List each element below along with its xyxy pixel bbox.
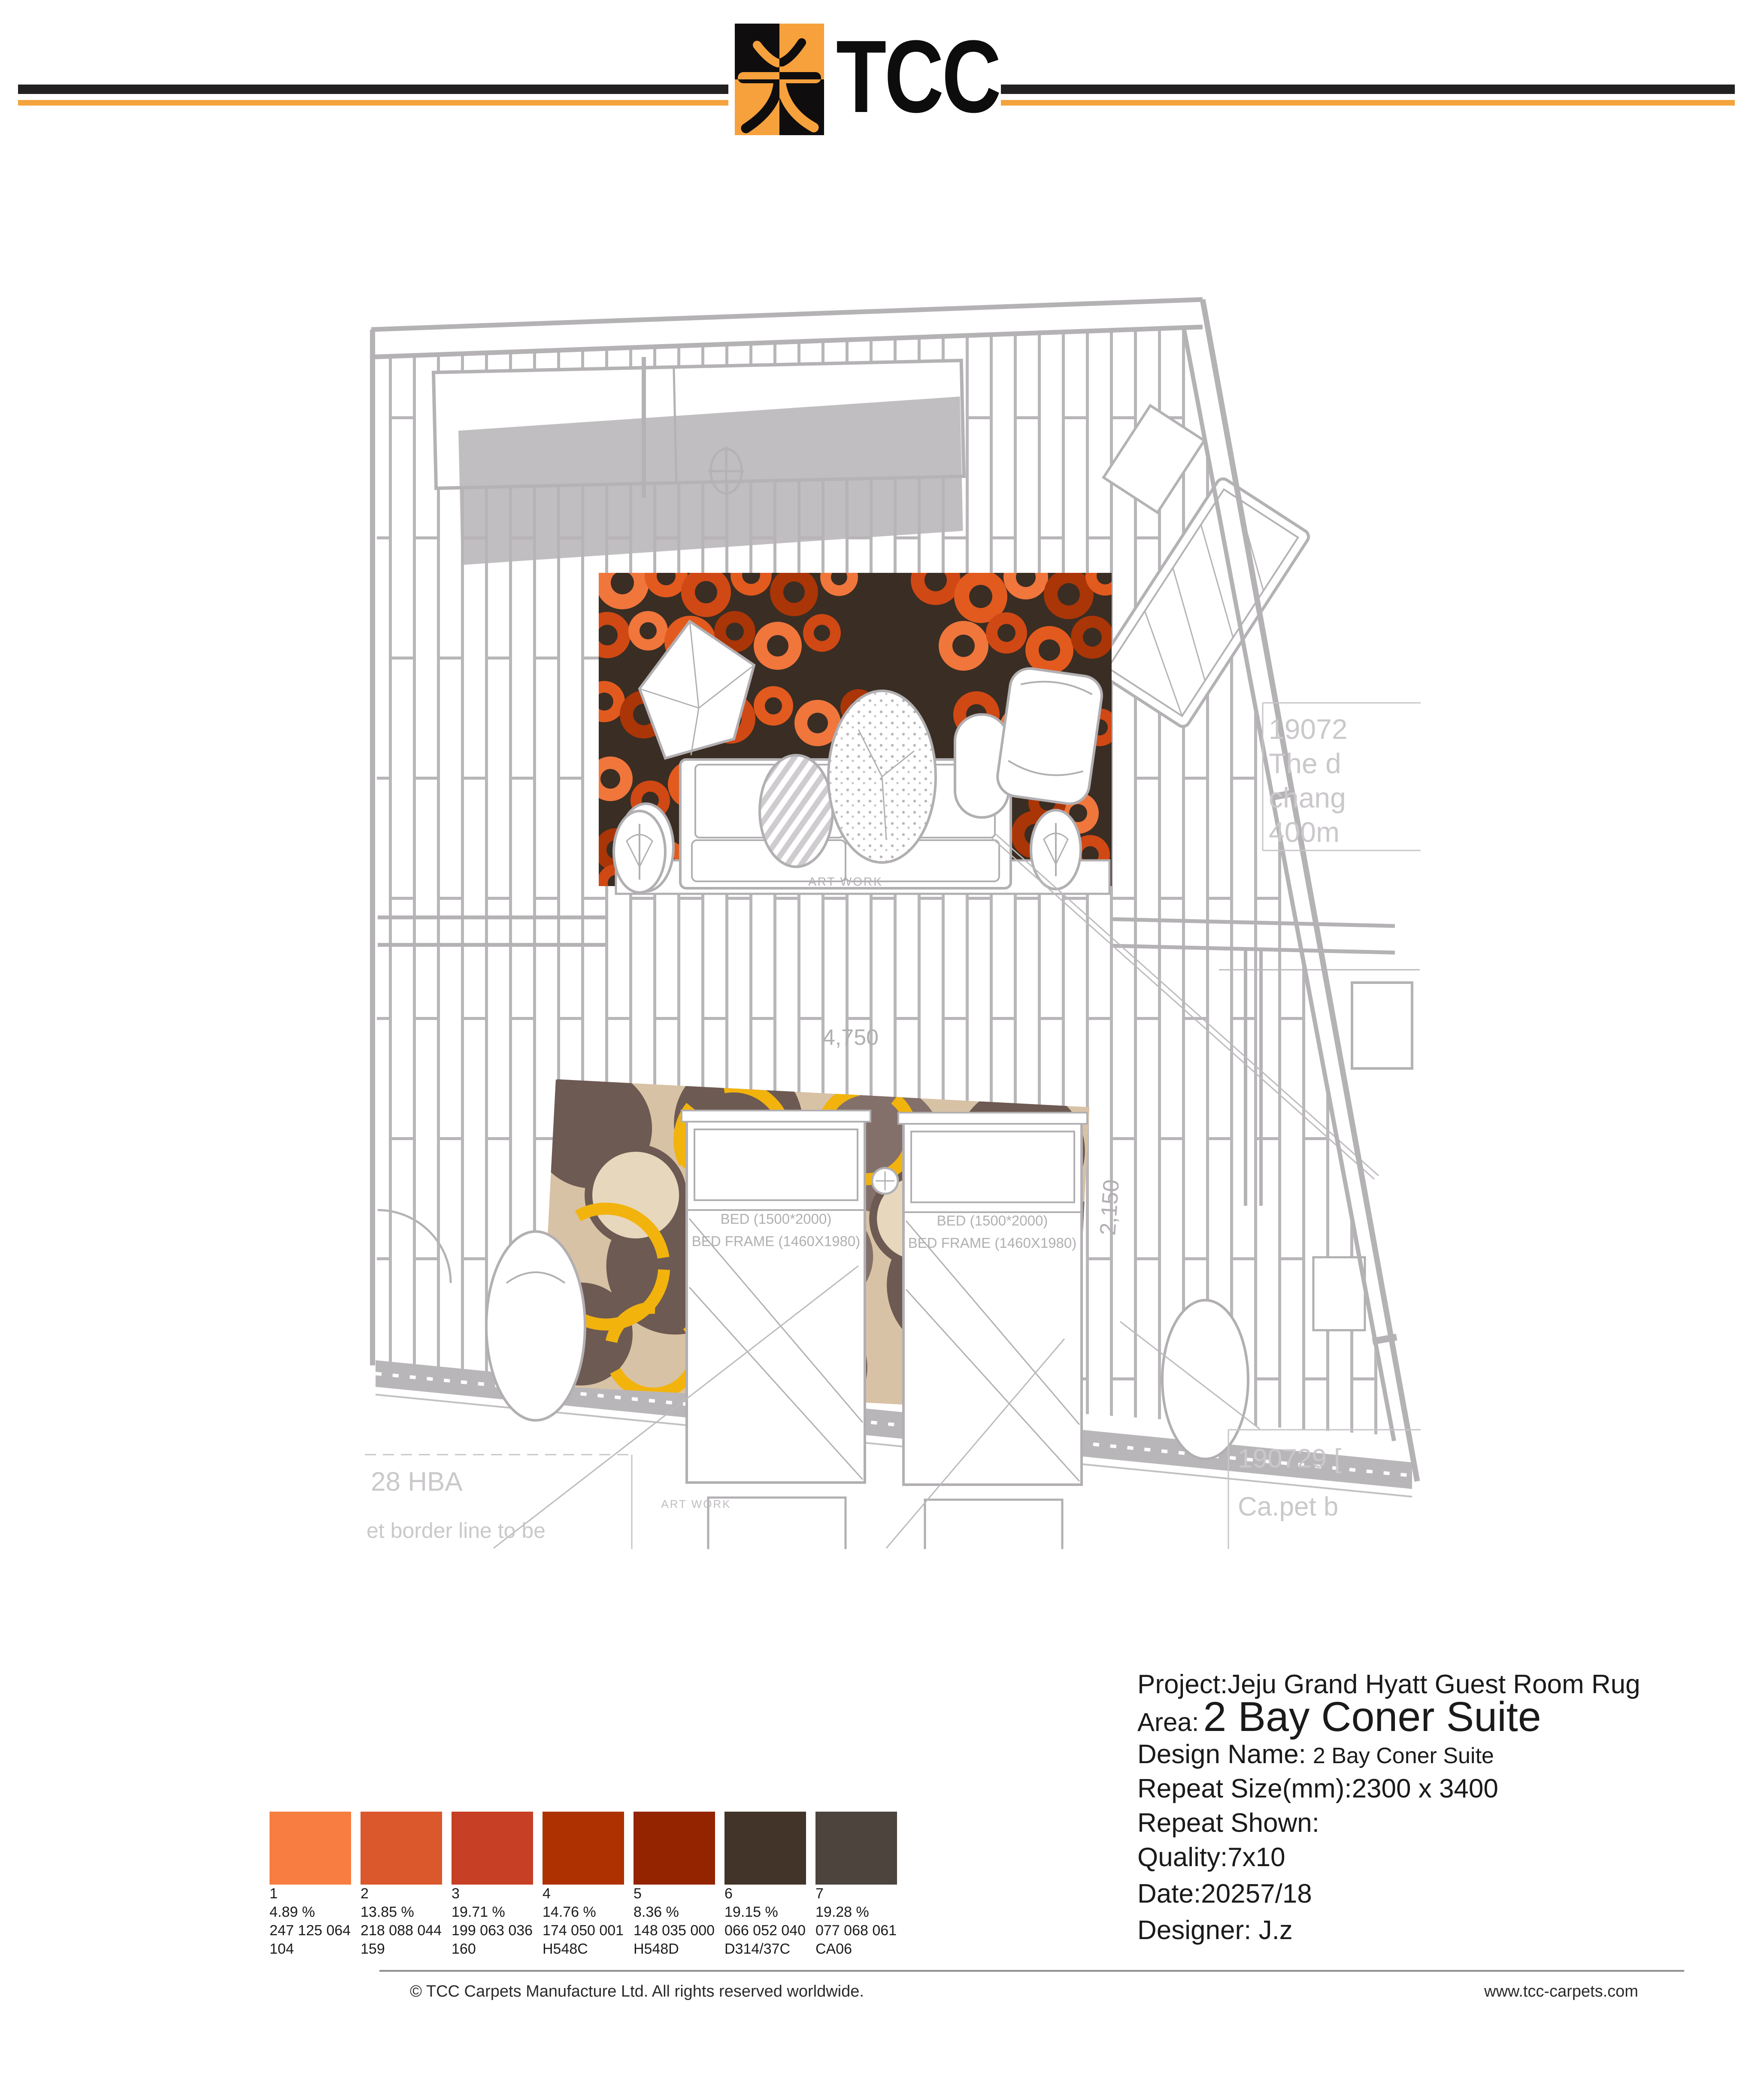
- designer-line: Designer: J.z: [1137, 1917, 1293, 1944]
- nightstand-icon: [872, 1168, 898, 1194]
- header-rule-left-black: [18, 85, 728, 94]
- note-bottom-right-line2: Ca.pet b: [1238, 1492, 1338, 1522]
- swatch-number: 3: [452, 1885, 533, 1903]
- swatch-percent: 19.15 %: [724, 1903, 806, 1921]
- swatch-code: D314/37C: [724, 1940, 806, 1958]
- brand-title: TCC: [836, 25, 999, 128]
- palette-cell: 7 19.28 % 077 068 061 CA06: [815, 1812, 897, 1958]
- tv-console: [433, 357, 966, 566]
- color-swatch-7: [815, 1812, 897, 1885]
- swatch-number: 4: [543, 1885, 624, 1903]
- artwork-label-bedroom: ART WORK: [661, 1498, 731, 1510]
- swatch-percent: 14.76 %: [543, 1903, 624, 1921]
- desk: [1313, 1257, 1365, 1330]
- swatch-code: 104: [270, 1940, 351, 1958]
- date-line: Date:20257/18: [1137, 1881, 1312, 1907]
- ottoman-hatched: [760, 755, 833, 867]
- note-bottom-left-line1: 28 HBA: [371, 1467, 463, 1497]
- bed2-label-line2: BED FRAME (1460X1980): [908, 1235, 1077, 1251]
- swatch-rgb: 199 063 036: [452, 1921, 533, 1940]
- swatch-number: 7: [815, 1885, 897, 1903]
- swatch-rgb: 218 088 044: [361, 1921, 442, 1940]
- swatch-rgb: 247 125 064: [270, 1921, 351, 1940]
- color-swatch-2: [361, 1812, 442, 1885]
- swatch-rgb: 174 050 001: [543, 1921, 624, 1940]
- floor-plan: 4,750 2,150 ART WORK ART WORK BED (1500*…: [365, 296, 1421, 1549]
- swatch-code: 160: [452, 1940, 533, 1958]
- floor-lamp-left-icon: [614, 811, 665, 893]
- palette-cell: 4 14.76 % 174 050 001 H548C: [543, 1812, 624, 1958]
- swatch-rgb: 077 068 061: [815, 1921, 897, 1940]
- bed1-label-line1: BED (1500*2000): [721, 1211, 832, 1227]
- swatch-number: 1: [270, 1885, 351, 1903]
- dimension-horizontal: 4,750: [823, 1025, 879, 1050]
- palette-cell: 5 8.36 % 148 035 000 H548D: [634, 1812, 715, 1958]
- header-rule-left-orange: [18, 100, 728, 106]
- round-chair-left: [486, 1232, 585, 1420]
- swatch-code: 159: [361, 1940, 442, 1958]
- round-table-dotted: [828, 691, 936, 862]
- artwork-label-living: ART WORK: [808, 875, 883, 888]
- color-palette: 1 4.89 % 247 125 064 104 2 13.85 % 218 0…: [270, 1812, 906, 1958]
- note-bottom-left: 28 HBA et border line to be: [365, 1455, 632, 1549]
- swatch-number: 5: [634, 1885, 715, 1903]
- tcc-logo-icon: [735, 24, 824, 135]
- area-value: 2 Bay Coner Suite: [1203, 1693, 1541, 1740]
- area-label: Area:: [1137, 1708, 1199, 1737]
- armchair: [995, 666, 1104, 806]
- design-name-line: Design Name:2 Bay Coner Suite: [1137, 1741, 1494, 1768]
- footer-website: www.tcc-carpets.com: [1484, 1982, 1638, 2001]
- color-swatch-6: [724, 1812, 806, 1885]
- note-right-edge-line1: 19072: [1269, 713, 1348, 745]
- swatch-rgb: 066 052 040: [724, 1921, 806, 1940]
- bed2-label-line1: BED (1500*2000): [937, 1213, 1048, 1229]
- area-line: Area:2 Bay Coner Suite: [1137, 1696, 1541, 1737]
- swatch-percent: 13.85 %: [361, 1903, 442, 1921]
- color-swatch-5: [634, 1812, 715, 1885]
- footer-copyright: © TCC Carpets Manufacture Ltd. All right…: [410, 1982, 864, 2001]
- round-chair-right: [1162, 1300, 1248, 1459]
- swatch-percent: 19.28 %: [815, 1903, 897, 1921]
- dimension-vertical: 2,150: [1095, 1179, 1124, 1236]
- swatch-percent: 19.71 %: [452, 1903, 533, 1921]
- floor-lamp-right-icon: [1031, 810, 1081, 889]
- footer-divider: [379, 1970, 1684, 1972]
- color-swatch-1: [270, 1812, 351, 1885]
- note-bottom-left-line2: et border line to be: [367, 1519, 546, 1543]
- note-bottom-right-line1: 190729 [: [1238, 1444, 1341, 1474]
- swatch-code: H548D: [634, 1940, 715, 1958]
- note-right-edge-line3: chang: [1269, 782, 1346, 814]
- swatch-code: CA06: [815, 1940, 897, 1958]
- note-right-edge-line4: 400m: [1269, 816, 1340, 848]
- swatch-number: 6: [724, 1885, 806, 1903]
- header-rule-right-black: [1001, 85, 1735, 94]
- palette-cell: 3 19.71 % 199 063 036 160: [452, 1812, 533, 1958]
- swatch-percent: 4.89 %: [270, 1903, 351, 1921]
- palette-cell: 6 19.15 % 066 052 040 D314/37C: [724, 1812, 806, 1958]
- repeat-size-line: Repeat Size(mm):2300 x 3400: [1137, 1776, 1498, 1802]
- design-name-value: 2 Bay Coner Suite: [1313, 1743, 1494, 1768]
- swatch-number: 2: [361, 1885, 442, 1903]
- palette-cell: 2 13.85 % 218 088 044 159: [361, 1812, 442, 1958]
- note-right-edge: 19072 The d chang 400m: [1263, 703, 1421, 850]
- swatch-percent: 8.36 %: [634, 1903, 715, 1921]
- repeat-shown-line: Repeat Shown:: [1137, 1810, 1319, 1837]
- color-swatch-4: [543, 1812, 624, 1885]
- note-bottom-right: 190729 [ Ca.pet b: [1228, 1430, 1421, 1549]
- palette-cell: 1 4.89 % 247 125 064 104: [270, 1812, 351, 1958]
- note-right-edge-line2: The d: [1269, 747, 1341, 779]
- swatch-rgb: 148 035 000: [634, 1921, 715, 1940]
- design-name-label: Design Name:: [1137, 1740, 1306, 1769]
- color-swatch-3: [452, 1812, 533, 1885]
- bed1-label-line2: BED FRAME (1460X1980): [692, 1233, 861, 1249]
- quality-line: Quality:7x10: [1137, 1844, 1285, 1871]
- header-rule-right-orange: [1001, 100, 1735, 106]
- bed-2: [898, 1113, 1087, 1549]
- swatch-code: H548C: [543, 1940, 624, 1958]
